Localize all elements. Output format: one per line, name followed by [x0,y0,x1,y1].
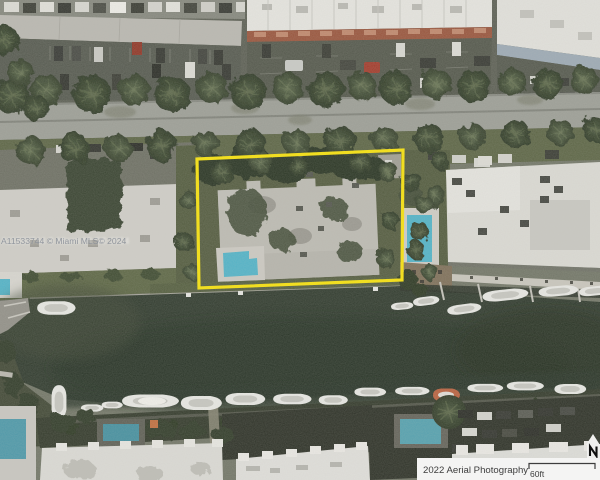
svg-text:60ft: 60ft [530,469,545,479]
svg-text:2022 Aerial Photography: 2022 Aerial Photography [423,465,528,476]
svg-text:A11533744 © Miami MLS© 2024: A11533744 © Miami MLS© 2024 [1,236,126,246]
